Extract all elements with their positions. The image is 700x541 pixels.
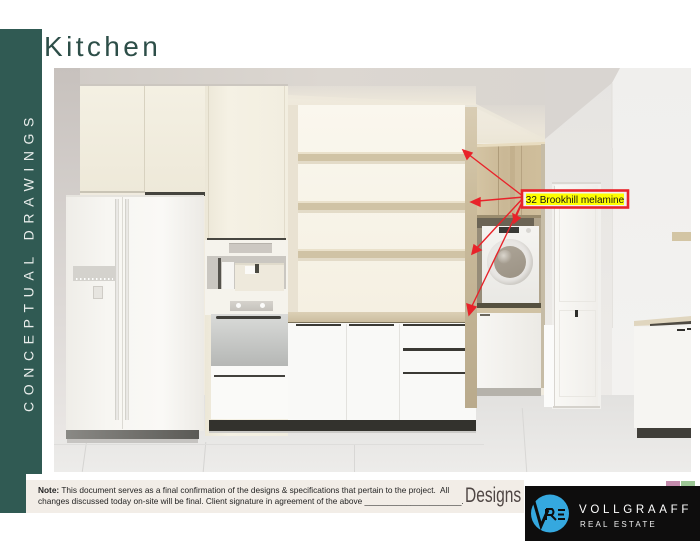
svg-text:32 Brookhill melamine: 32 Brookhill melamine	[526, 195, 625, 206]
